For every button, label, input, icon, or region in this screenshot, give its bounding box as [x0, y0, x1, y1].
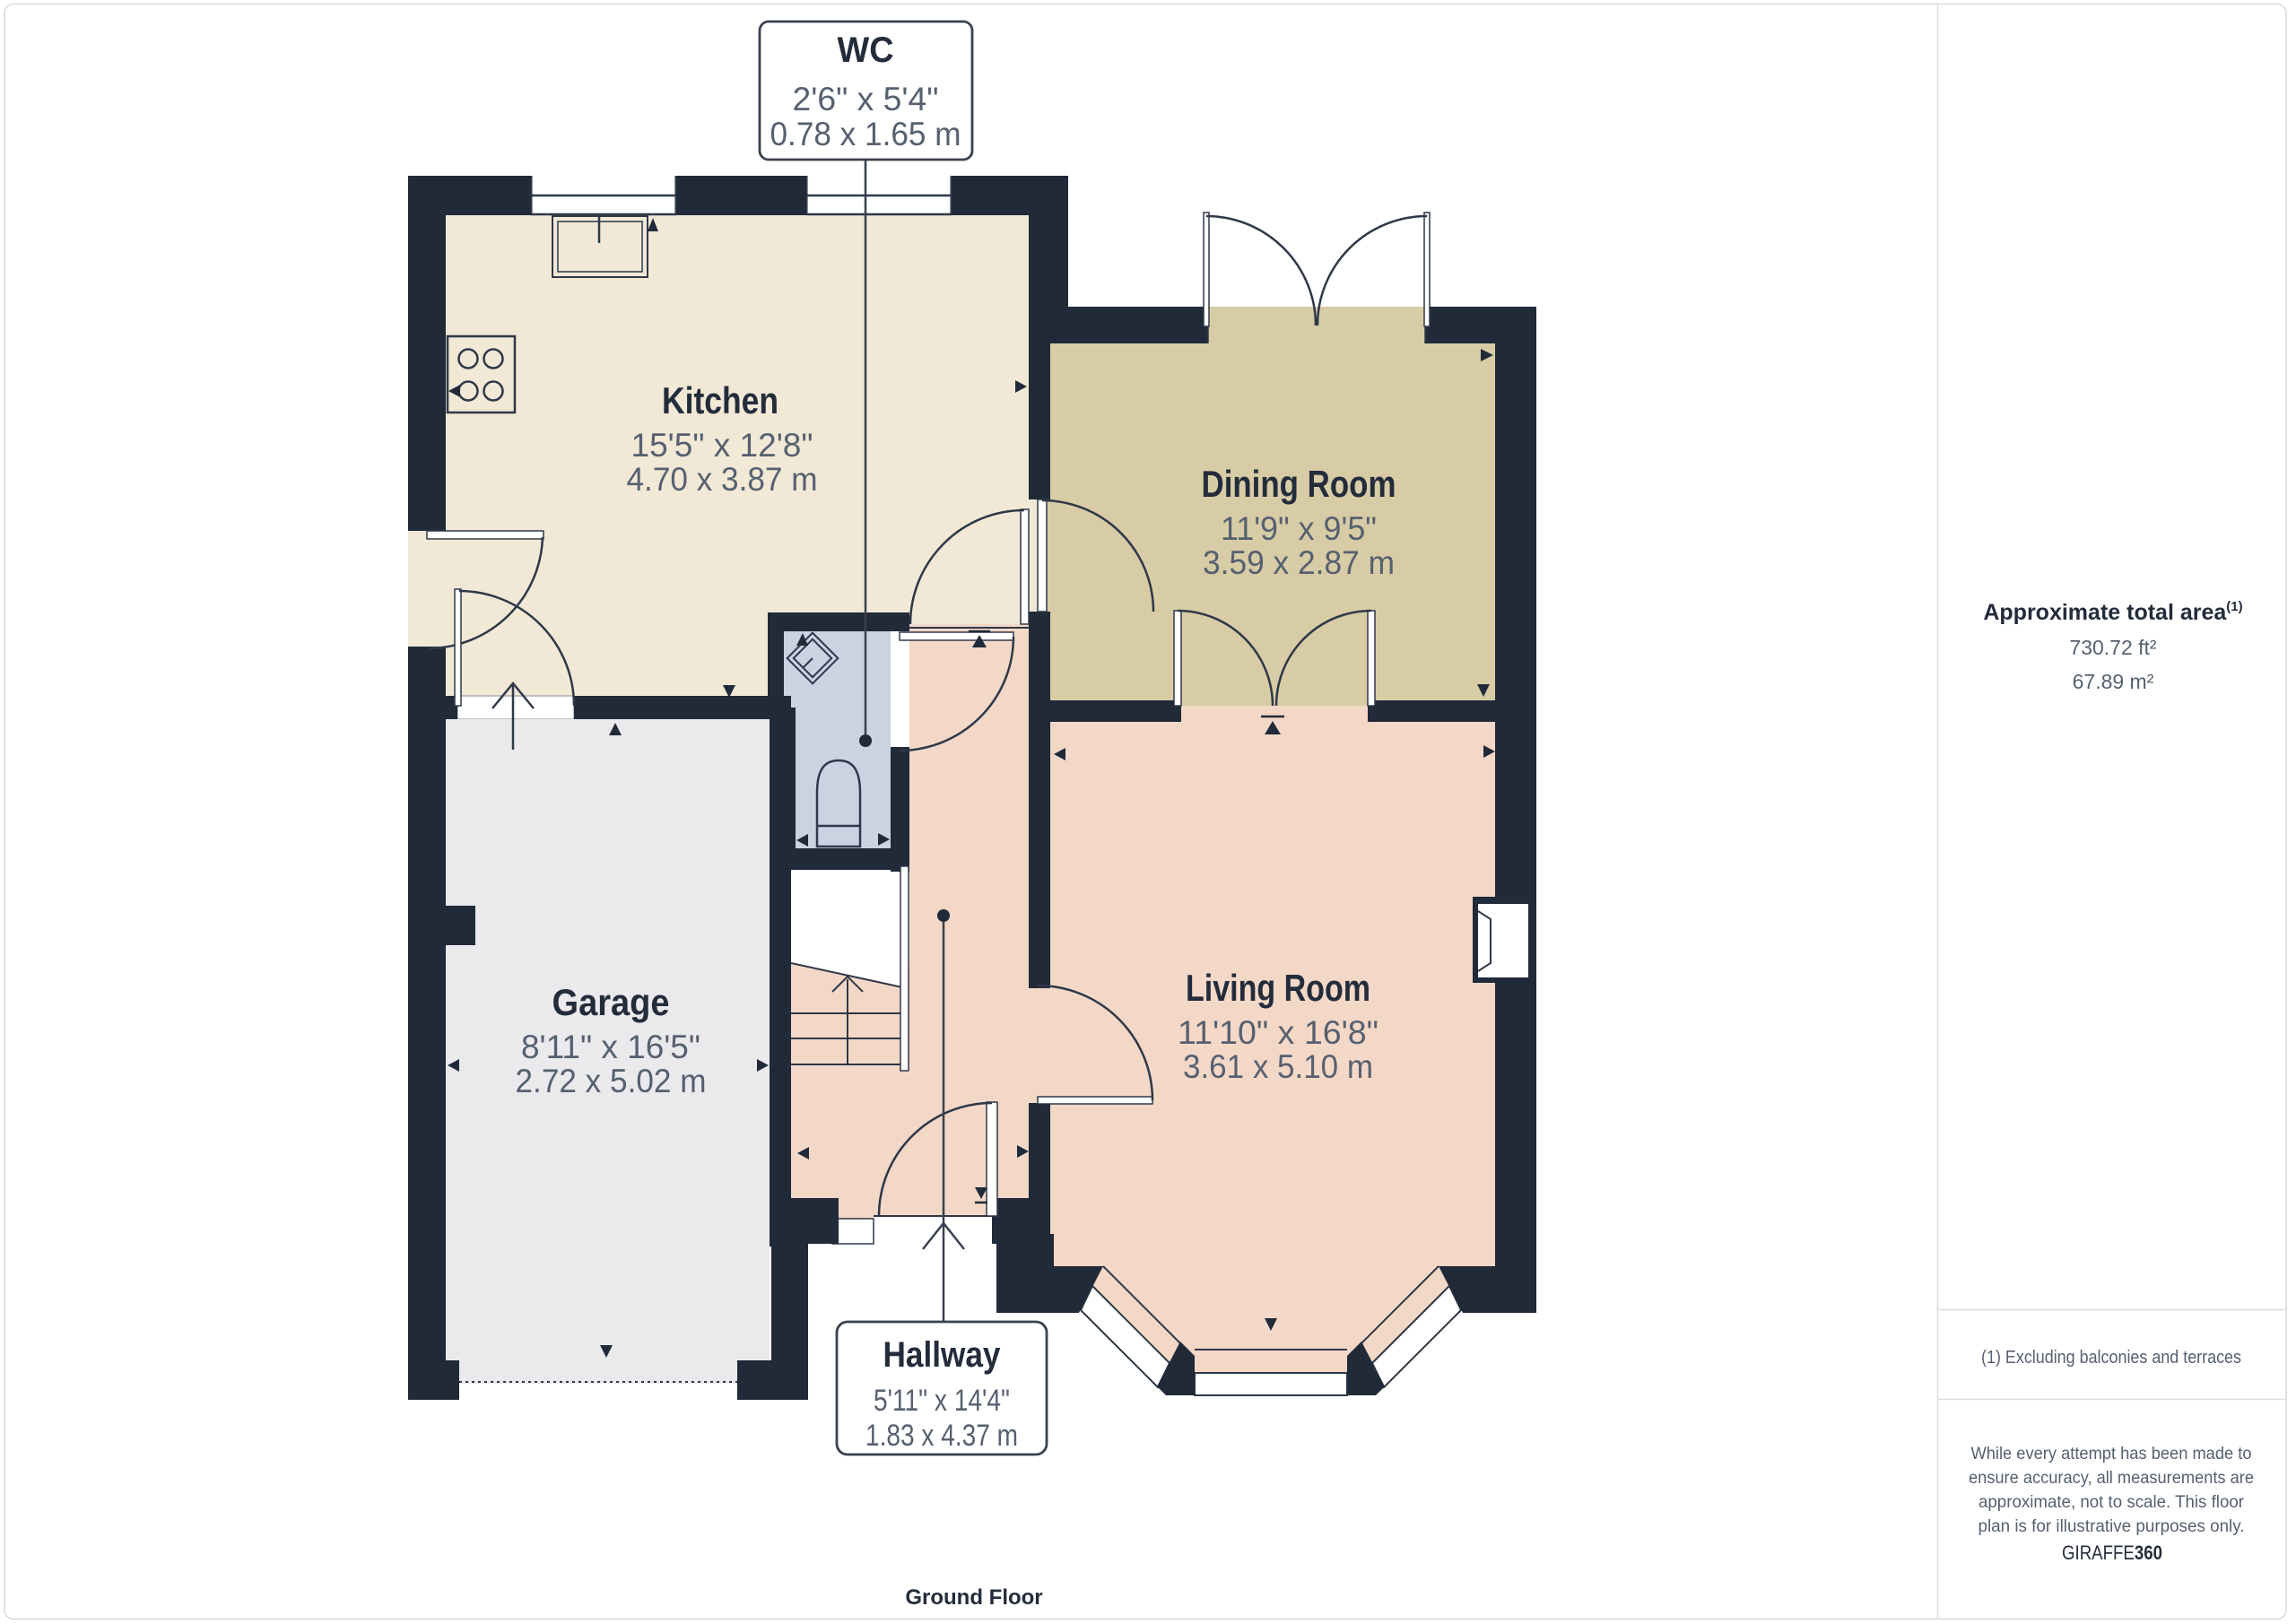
svg-text:Approximate total area(1): Approximate total area(1)	[1983, 599, 2242, 625]
svg-text:ensure accuracy, all measureme: ensure accuracy, all measurements are	[1969, 1468, 2254, 1488]
svg-text:GIRAFFE360: GIRAFFE360	[2062, 1541, 2162, 1564]
svg-text:3.61 x 5.10 m: 3.61 x 5.10 m	[1183, 1048, 1373, 1085]
svg-text:15'5" x 12'8": 15'5" x 12'8"	[631, 427, 813, 464]
svg-text:0.78 x 1.65 m: 0.78 x 1.65 m	[770, 116, 961, 152]
svg-text:2.72 x 5.02 m: 2.72 x 5.02 m	[516, 1063, 707, 1099]
svg-text:plan is for illustrative purpo: plan is for illustrative purposes only.	[1979, 1516, 2245, 1536]
svg-text:Dining Room: Dining Room	[1202, 463, 1396, 505]
svg-text:5'11" x 14'4": 5'11" x 14'4"	[874, 1384, 1010, 1418]
svg-text:8'11" x 16'5": 8'11" x 16'5"	[521, 1029, 700, 1065]
svg-text:Ground Floor: Ground Floor	[905, 1585, 1042, 1610]
svg-text:approximate, not to scale. Thi: approximate, not to scale. This floor	[1979, 1492, 2244, 1512]
svg-text:730.72 ft²: 730.72 ft²	[2069, 636, 2157, 659]
svg-text:1.83 x 4.37 m: 1.83 x 4.37 m	[865, 1419, 1018, 1453]
svg-text:Hallway: Hallway	[883, 1335, 1002, 1375]
svg-text:WC: WC	[838, 30, 894, 70]
svg-text:67.89 m²: 67.89 m²	[2073, 670, 2154, 693]
svg-text:While every attempt has been m: While every attempt has been made to	[1971, 1444, 2252, 1463]
svg-text:Kitchen: Kitchen	[662, 379, 778, 421]
svg-text:11'10" x 16'8": 11'10" x 16'8"	[1178, 1014, 1378, 1051]
svg-text:2'6" x 5'4": 2'6" x 5'4"	[793, 81, 939, 117]
svg-text:3.59 x 2.87 m: 3.59 x 2.87 m	[1203, 544, 1395, 581]
svg-text:11'9" x 9'5": 11'9" x 9'5"	[1221, 510, 1377, 547]
svg-text:Living Room: Living Room	[1186, 967, 1370, 1009]
svg-text:4.70 x 3.87 m: 4.70 x 3.87 m	[627, 461, 818, 498]
svg-text:(1) Excluding balconies and te: (1) Excluding balconies and terraces	[1981, 1348, 2241, 1368]
svg-text:Garage: Garage	[552, 981, 670, 1023]
